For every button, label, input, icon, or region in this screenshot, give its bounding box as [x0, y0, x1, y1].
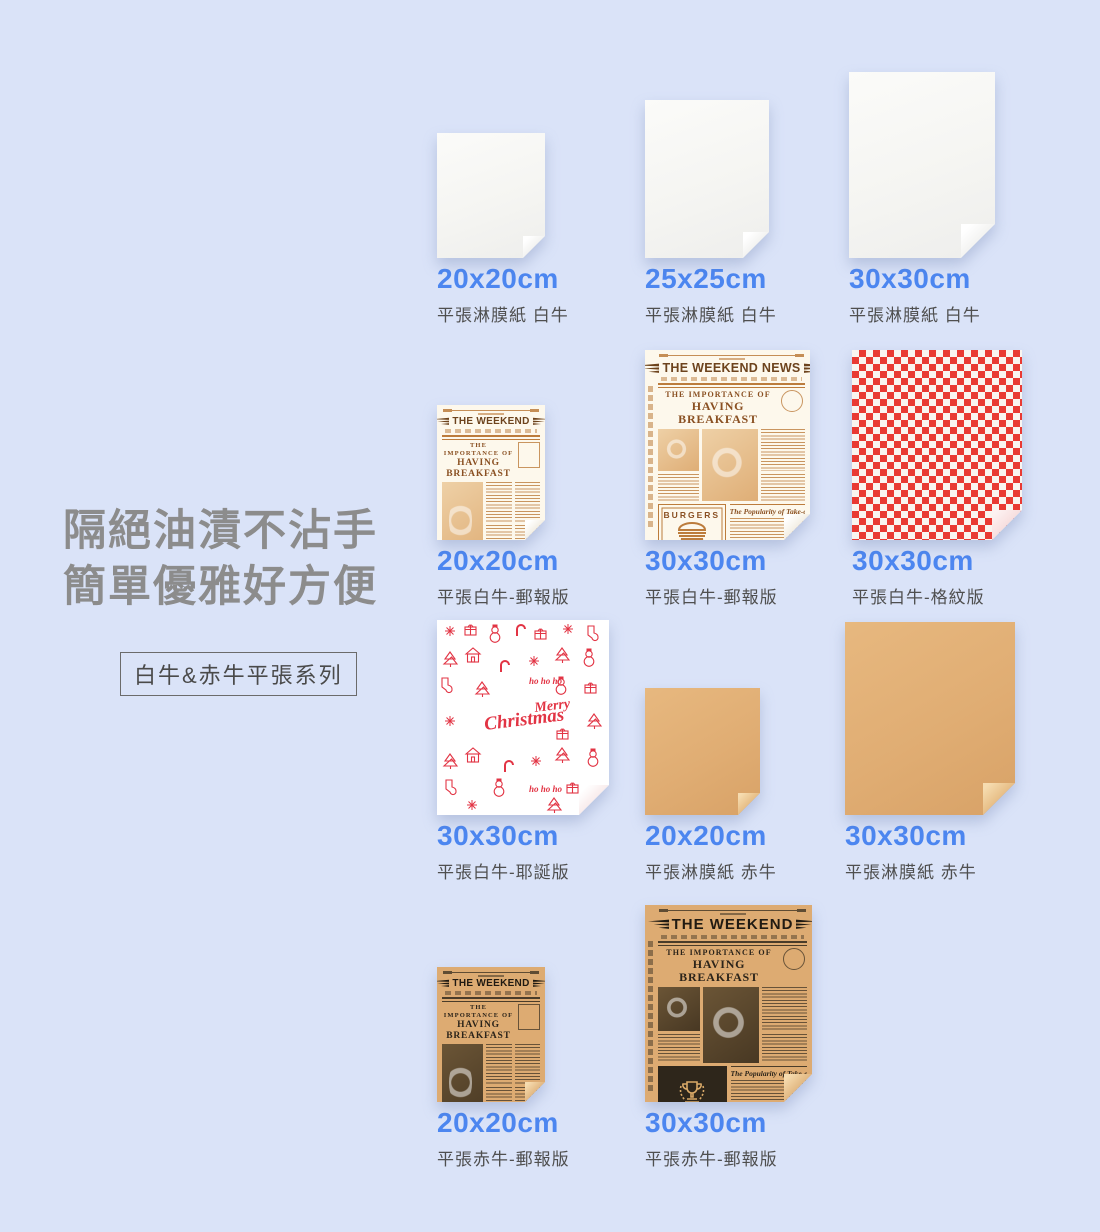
newsprint-text-column	[761, 429, 805, 471]
newsprint-double-rule	[442, 997, 540, 1002]
newsprint-photo	[702, 429, 758, 501]
product-desc-label: 平張赤牛-郵報版	[437, 1145, 545, 1170]
newsprint-text-column	[515, 482, 540, 522]
newsprint-text-column	[515, 1044, 540, 1084]
product-card: ho ho ho Merry Christmas ho ho ho	[437, 620, 609, 883]
product-size-label: 20x20cm	[645, 821, 760, 850]
newsprint-since-mark	[720, 913, 746, 915]
newsprint-stamp	[518, 1004, 540, 1030]
white-sheet-photo	[849, 72, 995, 258]
newsprint-white-sheet-photo: THE WEEKEND THE IMPORTANCE OF HAVING BRE…	[437, 405, 545, 540]
page-curl	[525, 520, 545, 540]
newsprint-double-rule	[658, 941, 807, 946]
product-size-label: 30x30cm	[852, 546, 1022, 575]
newsprint-subtitle-row	[661, 377, 802, 381]
masthead-title: THE WEEKEND	[452, 416, 529, 427]
trophy-icon	[677, 1080, 707, 1102]
checker-sheet-photo	[852, 350, 1022, 540]
masthead-title: THE WEEKEND	[672, 916, 794, 933]
newsprint-text-column	[762, 987, 807, 1031]
hero-headline-line2: 簡單優雅好方便	[63, 559, 378, 615]
product-card: THE WEEKEND THE IMPORTANCE OF HAVING BRE…	[437, 967, 545, 1170]
newsprint-text-column	[486, 1044, 511, 1084]
newsprint-double-rule	[442, 435, 540, 440]
product-size-label: 20x20cm	[437, 264, 545, 293]
newsprint-text-column	[486, 482, 511, 522]
newsprint-since-mark	[719, 358, 745, 360]
newsprint-text-column	[761, 474, 805, 501]
product-card: 30x30cm 平張白牛-格紋版	[852, 350, 1022, 608]
product-desc-label: 平張淋膜紙 白牛	[849, 301, 995, 326]
hero-headline-line1: 隔絕油漬不沾手	[63, 503, 378, 559]
newsprint-text-column	[658, 474, 699, 501]
newsprint-kicker: THE IMPORTANCE OF	[442, 442, 515, 458]
product-desc-label: 平張白牛-耶誕版	[437, 858, 609, 883]
masthead-title: THE WEEKEND NEWS	[662, 361, 800, 375]
trophy-badge	[658, 1066, 727, 1102]
newsprint-photo	[442, 1044, 483, 1102]
burgers-label: BURGERS	[661, 510, 723, 520]
product-card: 30x30cm 平張淋膜紙 赤牛	[845, 622, 1015, 883]
promo-banner: 隔絕油漬不沾手 簡單優雅好方便 白牛&赤牛平張系列 20x20cm 平張淋膜紙 …	[0, 0, 1100, 1232]
newsprint-stamp	[781, 390, 803, 412]
burger-icon	[675, 522, 709, 540]
product-card: 20x20cm 平張淋膜紙 白牛	[437, 133, 545, 326]
newsprint-masthead: THE WEEKEND	[442, 978, 540, 989]
masthead-wing-icon	[796, 919, 812, 930]
newsprint-side-column	[648, 941, 653, 1092]
page-curl	[743, 232, 769, 258]
masthead-wing-icon	[533, 979, 545, 988]
newsprint-side-column	[648, 386, 653, 530]
white-sheet-photo	[645, 100, 769, 258]
newsprint-headline: HAVING BREAKFAST	[658, 958, 780, 984]
newsprint-headline: HAVING BREAKFAST	[442, 1020, 515, 1041]
masthead-wing-icon	[437, 979, 449, 988]
page-curl	[983, 783, 1015, 815]
kraft-sheet-photo	[845, 622, 1015, 815]
product-desc-label: 平張淋膜紙 赤牛	[845, 858, 1015, 883]
product-size-label: 25x25cm	[645, 264, 769, 293]
product-desc-label: 平張淋膜紙 赤牛	[645, 858, 760, 883]
newsprint-subtitle-row	[445, 991, 537, 995]
newsprint-since-mark	[478, 413, 504, 415]
product-card: THE WEEKEND NEWS THE IMPORTANCE OF HAVIN…	[645, 350, 810, 608]
masthead-wing-icon	[645, 363, 659, 374]
page-curl	[992, 510, 1022, 540]
page-curl	[784, 1074, 812, 1102]
newsprint-photo	[658, 429, 699, 471]
newsprint-top-rule	[659, 910, 806, 911]
product-desc-label: 平張白牛-格紋版	[852, 583, 1022, 608]
product-desc-label: 平張淋膜紙 白牛	[645, 301, 769, 326]
page-curl	[525, 1082, 545, 1102]
newsprint-photo	[442, 482, 483, 540]
masthead-wing-icon	[533, 417, 545, 426]
newsprint-photo	[658, 987, 700, 1031]
newsprint-text-column	[486, 525, 511, 540]
newsprint-stamp	[783, 948, 805, 970]
newsprint-kicker: THE IMPORTANCE OF	[442, 1004, 515, 1020]
ho-ho-ho-text: ho ho ho	[529, 784, 563, 794]
product-card: THE WEEKEND THE IMPORTANCE OF HAVING BRE…	[437, 405, 545, 608]
newsprint-double-rule	[658, 383, 805, 388]
masthead-title: THE WEEKEND	[452, 978, 529, 989]
product-desc-label: 平張淋膜紙 白牛	[437, 301, 545, 326]
product-size-label: 30x30cm	[849, 264, 995, 293]
page-curl	[579, 785, 609, 815]
newsprint-text-column	[658, 1034, 700, 1063]
newsprint-masthead: THE WEEKEND	[442, 416, 540, 427]
newsprint-headline: HAVING BREAKFAST	[442, 458, 515, 479]
product-card: 20x20cm 平張淋膜紙 赤牛	[645, 688, 760, 883]
newsprint-top-rule	[443, 410, 539, 411]
newsprint-masthead: THE WEEKEND NEWS	[658, 361, 805, 375]
product-size-label: 30x30cm	[845, 821, 1015, 850]
product-desc-label: 平張赤牛-郵報版	[645, 1145, 812, 1170]
product-size-label: 20x20cm	[437, 546, 545, 575]
series-badge: 白牛&赤牛平張系列	[120, 652, 357, 696]
product-size-label: 30x30cm	[645, 1108, 812, 1137]
newsprint-subtitle-row	[445, 429, 537, 433]
newsprint-kraft-sheet-photo: THE WEEKEND THE IMPORTANCE OF HAVING BRE…	[437, 967, 545, 1102]
masthead-wing-icon	[804, 363, 810, 374]
page-curl	[961, 224, 995, 258]
product-size-label: 30x30cm	[437, 821, 609, 850]
product-desc-label: 平張白牛-郵報版	[645, 583, 810, 608]
burgers-badge: BURGERS HOMEMADE	[658, 504, 726, 540]
newsprint-since-mark	[478, 975, 504, 977]
christmas-sheet-photo: ho ho ho Merry Christmas ho ho ho	[437, 620, 609, 815]
white-sheet-photo	[437, 133, 545, 258]
kraft-sheet-photo	[645, 688, 760, 815]
hero-block: 隔絕油漬不沾手 簡單優雅好方便 白牛&赤牛平張系列	[63, 503, 378, 696]
product-card: THE WEEKEND THE IMPORTANCE OF HAVING BRE…	[645, 905, 812, 1170]
page-curl	[738, 793, 760, 815]
newsprint-photo	[703, 987, 760, 1063]
masthead-wing-icon	[437, 417, 449, 426]
newsprint-text-column	[486, 1087, 511, 1102]
newsprint-white-sheet-photo: THE WEEKEND NEWS THE IMPORTANCE OF HAVIN…	[645, 350, 810, 540]
masthead-wing-icon	[648, 919, 669, 930]
newsprint-top-rule	[659, 355, 804, 356]
newsprint-stamp	[518, 442, 540, 468]
page-curl	[523, 236, 545, 258]
product-desc-label: 平張白牛-郵報版	[437, 583, 545, 608]
newsprint-text-column	[762, 1034, 807, 1063]
ho-ho-ho-text: ho ho ho	[529, 676, 563, 686]
newsprint-top-rule	[443, 972, 539, 973]
product-size-label: 30x30cm	[645, 546, 810, 575]
newsprint-subtitle-row	[661, 935, 804, 939]
product-size-label: 20x20cm	[437, 1108, 545, 1137]
newsprint-headline: HAVING BREAKFAST	[658, 400, 778, 426]
newsprint-masthead: THE WEEKEND	[658, 916, 807, 933]
product-card: 30x30cm 平張淋膜紙 白牛	[849, 72, 995, 326]
product-card: 25x25cm 平張淋膜紙 白牛	[645, 100, 769, 326]
page-curl	[784, 514, 810, 540]
newsprint-kraft-sheet-photo: THE WEEKEND THE IMPORTANCE OF HAVING BRE…	[645, 905, 812, 1102]
christmas-text: Christmas	[483, 704, 565, 735]
